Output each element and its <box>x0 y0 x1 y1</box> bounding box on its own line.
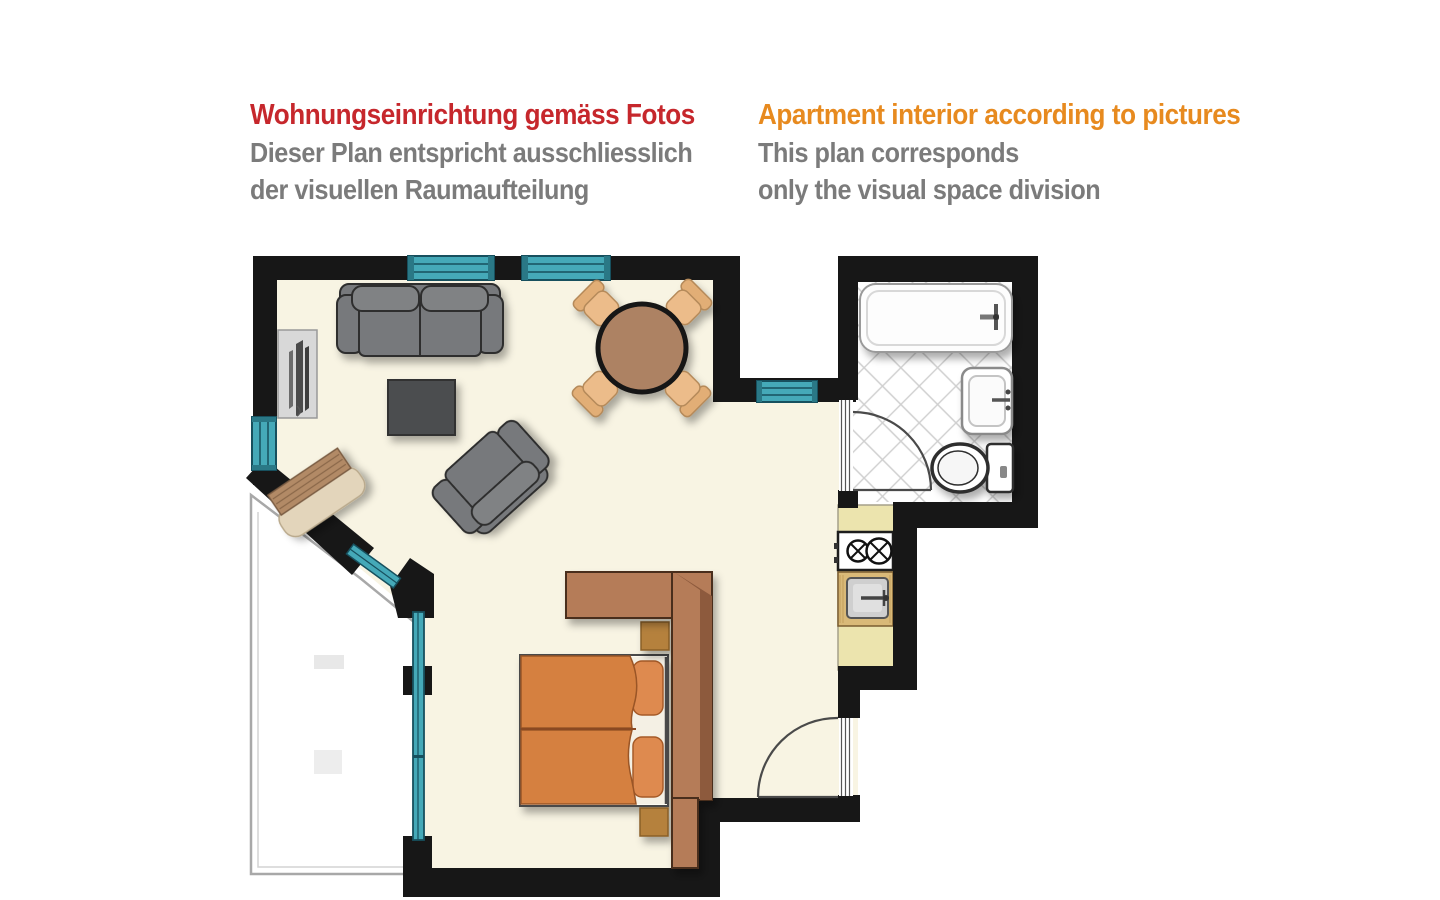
dining-table <box>598 304 686 392</box>
nightstand <box>640 808 668 836</box>
window-left <box>252 417 276 470</box>
wall-top <box>253 256 740 280</box>
nightstand <box>641 622 669 650</box>
wall-kitchen-right <box>893 502 917 690</box>
tv-icon <box>289 340 309 416</box>
bathroom-sink <box>962 368 1012 434</box>
wall-bathroom-right <box>1012 256 1038 528</box>
stove <box>834 532 893 570</box>
bed-pillow <box>633 661 663 715</box>
wall-corridor-bottom <box>700 798 860 822</box>
bathtub <box>860 284 1012 352</box>
balcony-furniture-mark <box>314 750 342 774</box>
bed-duvet <box>521 656 637 728</box>
wall-bathroom-top <box>838 256 1038 282</box>
window-niche <box>757 381 817 402</box>
sofa <box>337 284 503 356</box>
wall-bathroom-left <box>838 256 858 400</box>
window-balcony-long <box>413 612 424 840</box>
tv-stand <box>278 330 317 418</box>
wall-window-end <box>403 836 432 897</box>
coffee-table <box>388 380 455 435</box>
floor-plan <box>0 0 1440 900</box>
window-top-2 <box>522 256 610 280</box>
wall-bottom <box>405 868 720 897</box>
bed-pillow <box>633 737 663 797</box>
kitchen-sink <box>838 572 893 626</box>
bed <box>520 655 668 806</box>
balcony-furniture-mark <box>314 655 344 669</box>
toilet <box>932 444 1013 492</box>
wall-corridor-top <box>838 666 917 690</box>
kitchen <box>834 505 895 670</box>
window-top-1 <box>408 256 494 280</box>
page: Wohnungseinrichtung gemäss Fotos Dieser … <box>0 0 1440 900</box>
wall-entry-upper <box>838 690 860 718</box>
wall-bathroom-left-low <box>838 490 858 508</box>
bed-duvet <box>521 730 636 804</box>
